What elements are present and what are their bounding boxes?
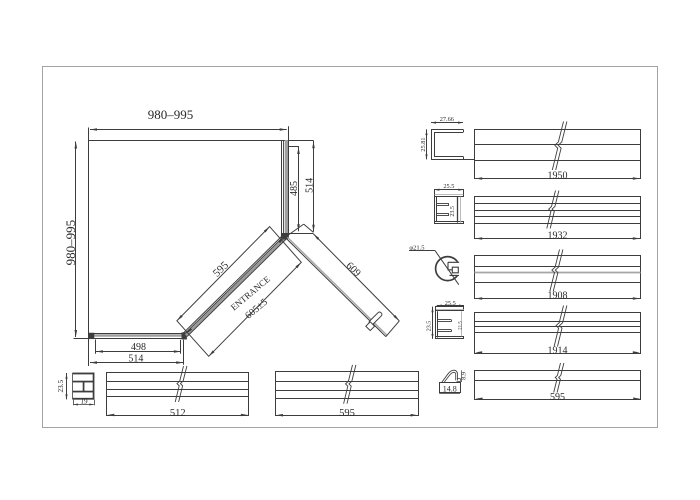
svg-text:27.66: 27.66 [440,116,454,123]
svg-text:485: 485 [289,181,300,196]
svg-text:1914: 1914 [548,346,568,357]
svg-text:980–995: 980–995 [148,107,194,122]
svg-text:φ21.5: φ21.5 [409,244,424,251]
svg-text:514: 514 [304,178,315,193]
svg-text:23.5: 23.5 [427,321,433,332]
svg-text:23.5: 23.5 [450,206,456,217]
svg-text:512: 512 [170,408,186,419]
svg-text:595: 595 [339,408,355,419]
svg-text:1932: 1932 [548,231,568,242]
svg-text:14.8: 14.8 [443,384,457,393]
svg-text:25.5: 25.5 [443,183,454,190]
svg-text:980–995: 980–995 [63,220,78,266]
svg-text:595: 595 [550,392,565,403]
svg-text:1950: 1950 [548,171,568,182]
svg-text:25.5: 25.5 [445,300,456,307]
svg-text:514: 514 [128,353,143,364]
svg-text:1908: 1908 [548,291,568,302]
svg-text:21.5: 21.5 [458,321,463,330]
svg-text:25.81: 25.81 [420,137,427,151]
svg-text:19: 19 [80,398,88,406]
svg-text:498: 498 [131,342,146,353]
svg-text:23.5: 23.5 [57,380,65,393]
